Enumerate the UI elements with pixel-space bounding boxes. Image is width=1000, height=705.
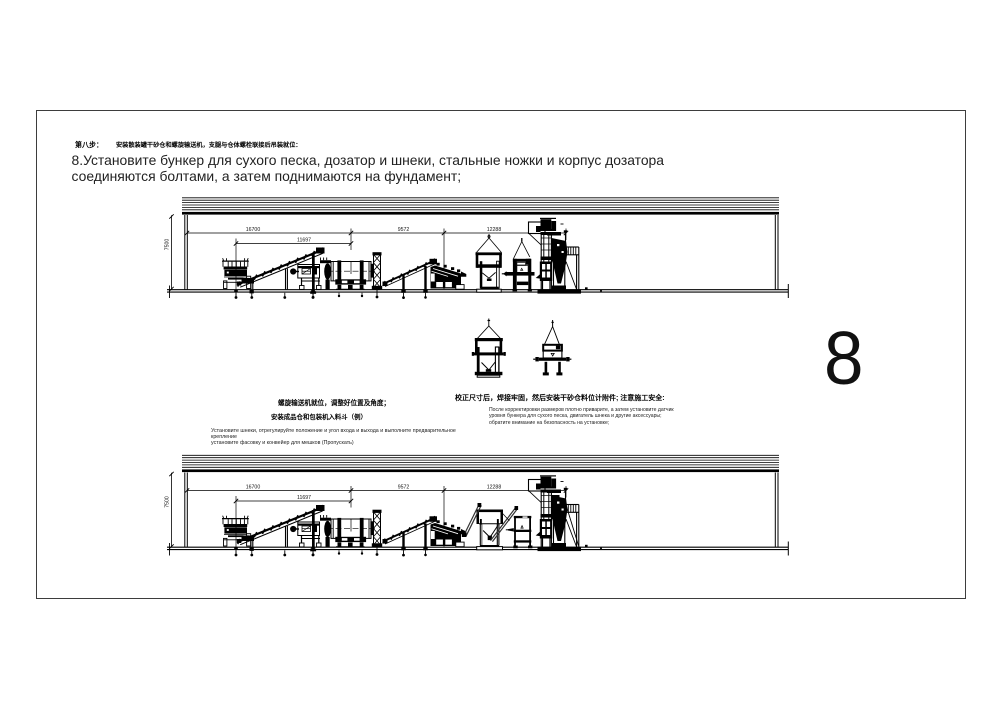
svg-text:12288: 12288 <box>487 227 502 233</box>
svg-text:16700: 16700 <box>246 227 261 233</box>
svg-text:11697: 11697 <box>297 495 311 501</box>
svg-text:9572: 9572 <box>398 485 410 491</box>
svg-text:12288: 12288 <box>487 485 502 491</box>
svg-text:11697: 11697 <box>297 238 311 244</box>
svg-text:7500: 7500 <box>164 239 170 251</box>
svg-text:7500: 7500 <box>164 496 170 508</box>
svg-text:16700: 16700 <box>246 485 261 491</box>
svg-text:9572: 9572 <box>398 227 410 233</box>
